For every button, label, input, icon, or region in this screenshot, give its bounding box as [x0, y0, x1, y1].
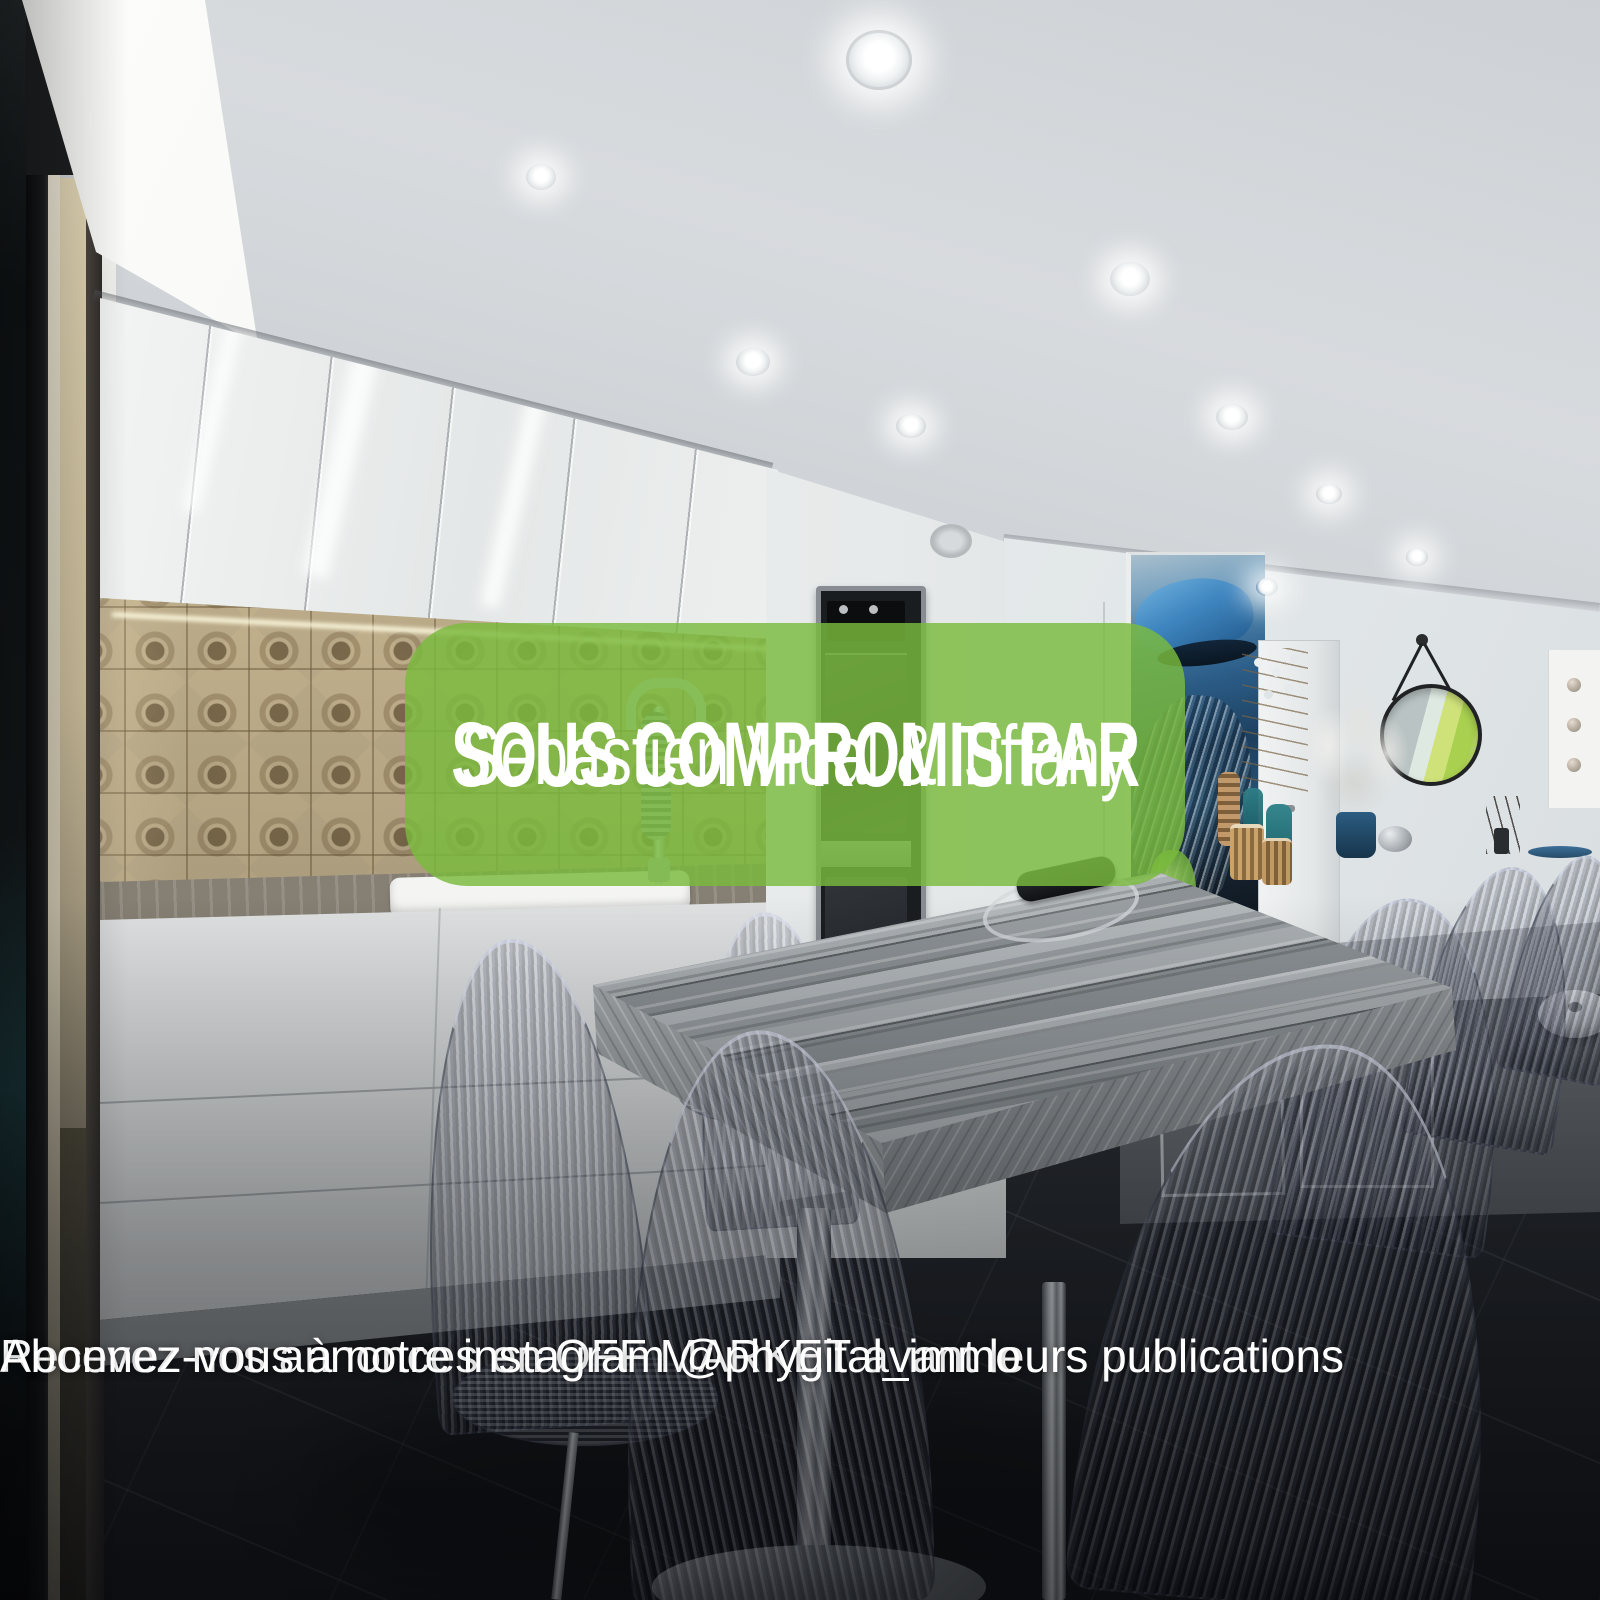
hook-knob: [1567, 758, 1581, 772]
hook-knob: [1567, 678, 1581, 692]
silver-vase: [1378, 826, 1412, 852]
status-banner: SOUS COMPROMIS PAR Sebastien Vidal & Tif…: [405, 623, 1185, 886]
ceiling-spotlight: [1316, 484, 1342, 504]
blue-vase: [1336, 812, 1376, 858]
kitchen-photo-post: SOUS COMPROMIS PAR Sebastien Vidal & Tif…: [0, 0, 1600, 1600]
footer-line-2: Abonnez-vous à notre instagram @phygital…: [0, 1322, 1021, 1390]
wicker-drum: [1230, 824, 1264, 880]
cotton-buds: [1254, 658, 1263, 667]
curtain: [60, 178, 86, 1128]
dried-flowers: [1296, 688, 1412, 824]
ceiling-spotlight: [1216, 404, 1248, 430]
oven-display-icon: [839, 605, 848, 614]
ceiling-spotlight: [736, 348, 770, 376]
ceiling-spotlight: [846, 30, 912, 90]
cabinet-reflection: [479, 381, 550, 610]
cabinet-reflection: [302, 330, 384, 579]
banner-subtitle: Sebastien Vidal & Tiffany: [460, 713, 1130, 797]
ceiling-spotlight: [1110, 262, 1150, 296]
oven-display-icon: [869, 605, 878, 614]
wicker-drum: [1262, 838, 1292, 885]
incense-bottle: [1494, 828, 1509, 854]
hook-panel: [1548, 650, 1600, 808]
ceiling-spotlight: [896, 414, 926, 438]
hook-knob: [1567, 718, 1581, 732]
ceiling-spotlight: [1406, 548, 1428, 566]
ceiling-spotlight: [526, 164, 556, 190]
ceiling-spotlight: [1256, 578, 1278, 596]
wall-vent: [930, 524, 972, 558]
cabinet-reflection: [183, 316, 244, 514]
